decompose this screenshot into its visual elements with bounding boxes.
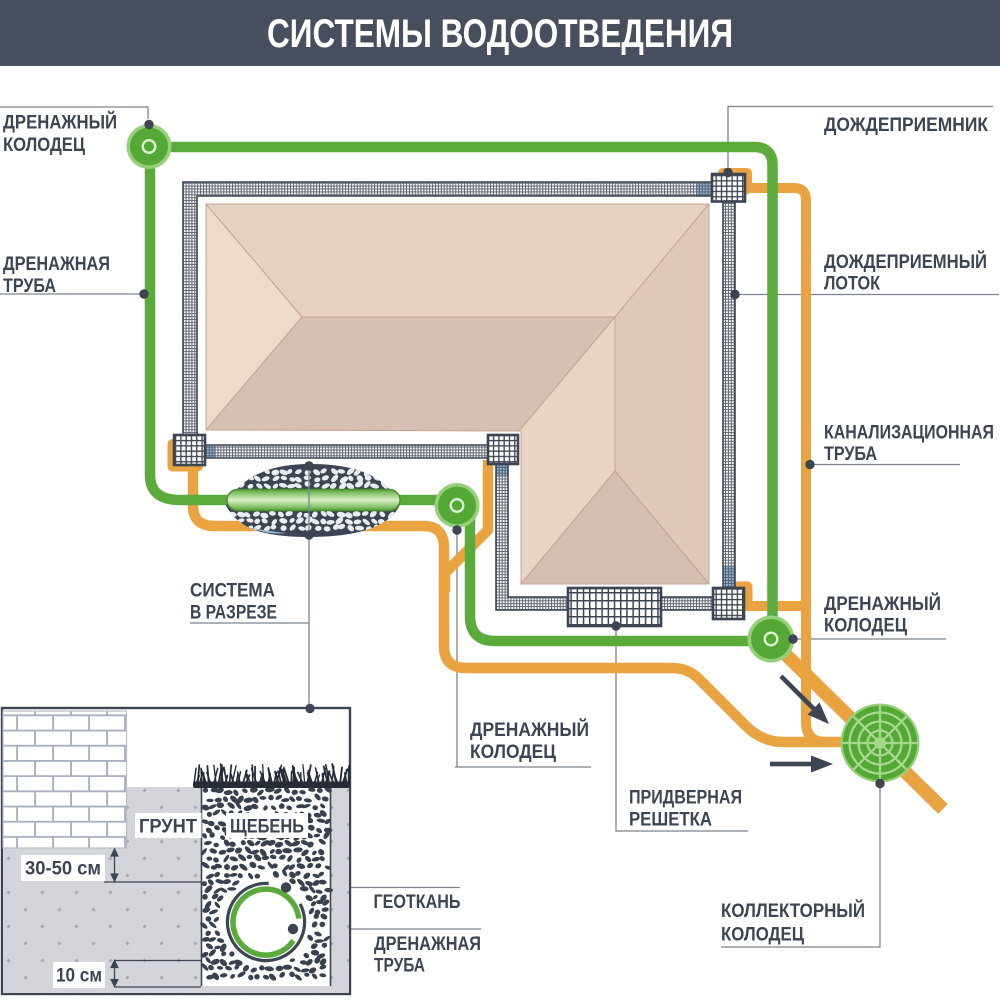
svg-text:ДРЕНАЖНЫЙ: ДРЕНАЖНЫЙ [3, 110, 117, 134]
svg-text:ДРЕНАЖНАЯ: ДРЕНАЖНАЯ [3, 253, 110, 275]
svg-text:КОЛОДЕЦ: КОЛОДЕЦ [470, 741, 557, 763]
svg-text:КОЛЛЕКТОРНЫЙ: КОЛЛЕКТОРНЫЙ [721, 898, 865, 922]
svg-text:СИСТЕМЫ ВОДООТВЕДЕНИЯ: СИСТЕМЫ ВОДООТВЕДЕНИЯ [267, 12, 733, 56]
svg-text:СИСТЕМА: СИСТЕМА [190, 580, 275, 602]
svg-text:РЕШЕТКА: РЕШЕТКА [629, 809, 712, 831]
svg-text:ГРУНТ: ГРУНТ [139, 816, 197, 838]
svg-text:ГЕОТКАНЬ: ГЕОТКАНЬ [374, 891, 461, 913]
svg-text:ЛОТОК: ЛОТОК [824, 273, 880, 295]
svg-text:ТРУБА: ТРУБА [824, 443, 877, 465]
svg-text:30-50 см: 30-50 см [25, 858, 101, 880]
svg-text:ДРЕНАЖНЫЙ: ДРЕНАЖНЫЙ [824, 591, 941, 615]
svg-text:ДРЕНАЖНЫЙ: ДРЕНАЖНЫЙ [470, 717, 589, 741]
svg-text:ЩЕБЕНЬ: ЩЕБЕНЬ [230, 816, 304, 838]
svg-text:КОЛОДЕЦ: КОЛОДЕЦ [721, 924, 805, 946]
svg-text:ТРУБА: ТРУБА [3, 275, 56, 297]
svg-text:В РАЗРЕЗЕ: В РАЗРЕЗЕ [190, 602, 277, 624]
svg-text:ТРУБА: ТРУБА [374, 955, 425, 977]
svg-text:10 см: 10 см [56, 965, 102, 987]
svg-text:ДОЖДЕПРИЕМНЫЙ: ДОЖДЕПРИЕМНЫЙ [824, 249, 987, 273]
svg-text:КАНАЛИЗАЦИОННАЯ: КАНАЛИЗАЦИОННАЯ [824, 422, 994, 444]
svg-text:ПРИДВЕРНАЯ: ПРИДВЕРНАЯ [629, 787, 742, 809]
svg-text:КОЛОДЕЦ: КОЛОДЕЦ [824, 615, 908, 637]
svg-text:ДРЕНАЖНАЯ: ДРЕНАЖНАЯ [374, 933, 481, 955]
svg-text:ДОЖДЕПРИЕМНИК: ДОЖДЕПРИЕМНИК [824, 114, 988, 136]
svg-text:КОЛОДЕЦ: КОЛОДЕЦ [3, 134, 86, 156]
